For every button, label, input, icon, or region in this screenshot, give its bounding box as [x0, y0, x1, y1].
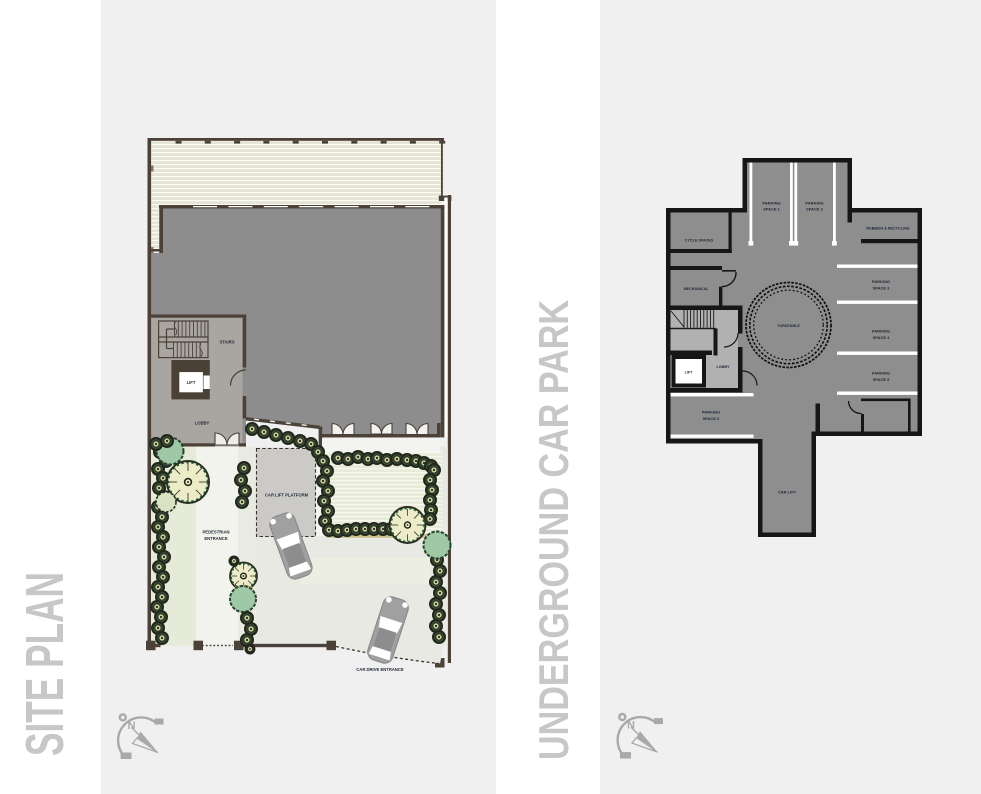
svg-text:LIFT: LIFT: [685, 371, 694, 375]
svg-text:TURNTABLE: TURNTABLE: [777, 324, 800, 328]
svg-text:STAIRS: STAIRS: [219, 340, 234, 345]
svg-text:PARKING: PARKING: [805, 201, 823, 206]
svg-text:PARKING: PARKING: [872, 329, 890, 334]
svg-text:SITE PLAN: SITE PLAN: [15, 572, 75, 756]
svg-text:PARKING: PARKING: [702, 410, 720, 415]
svg-text:CAR LIFT: CAR LIFT: [778, 490, 797, 495]
svg-text:SPACE 1: SPACE 1: [763, 207, 781, 212]
svg-text:SPACE 4: SPACE 4: [873, 335, 891, 340]
svg-text:LIFT: LIFT: [187, 380, 196, 385]
svg-text:PEDESTRIAN: PEDESTRIAN: [203, 530, 230, 535]
svg-text:PARKING: PARKING: [872, 371, 890, 376]
svg-text:PARKING: PARKING: [872, 279, 890, 284]
svg-text:UNDERGROUND CAR PARK: UNDERGROUND CAR PARK: [530, 300, 577, 760]
svg-text:CAR DRIVE ENTRANCE: CAR DRIVE ENTRANCE: [356, 667, 404, 672]
svg-text:ENTRANCE: ENTRANCE: [204, 536, 227, 541]
svg-text:SPACE 5: SPACE 5: [873, 377, 891, 382]
svg-text:PARKING: PARKING: [762, 201, 780, 206]
svg-text:RUBBISH & RECYCLING: RUBBISH & RECYCLING: [866, 227, 909, 231]
svg-text:CAR LIFT PLATFORM: CAR LIFT PLATFORM: [265, 493, 309, 498]
svg-text:SPACE 3: SPACE 3: [873, 286, 891, 291]
svg-text:SPACE 6: SPACE 6: [703, 416, 721, 421]
svg-text:LOBBY: LOBBY: [195, 421, 210, 426]
svg-text:CYCLE SPACES: CYCLE SPACES: [685, 239, 714, 243]
svg-text:LOBBY: LOBBY: [717, 365, 730, 369]
svg-text:MECHANICAL: MECHANICAL: [684, 287, 710, 291]
svg-text:SPACE 2: SPACE 2: [806, 207, 824, 212]
